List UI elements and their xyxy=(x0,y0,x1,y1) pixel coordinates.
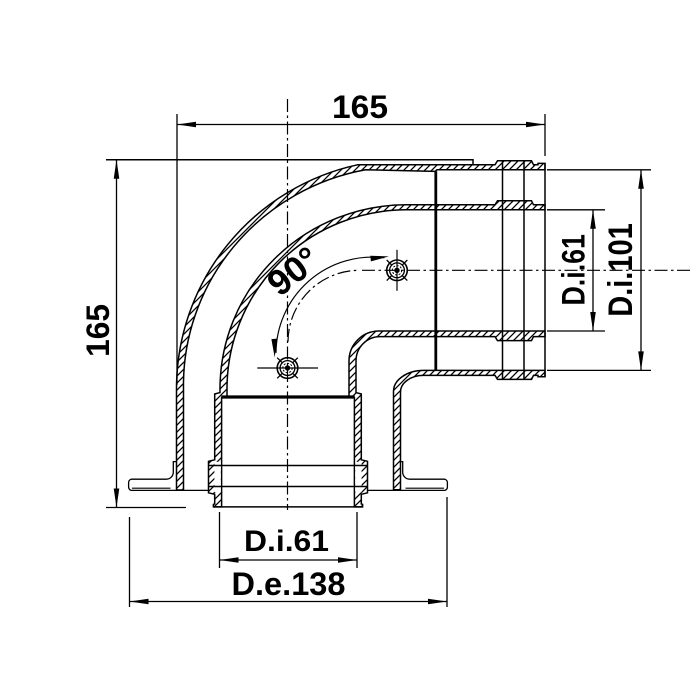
svg-text:165: 165 xyxy=(332,89,388,125)
svg-text:165: 165 xyxy=(80,304,116,357)
svg-text:D.i.61: D.i.61 xyxy=(244,525,329,558)
svg-text:D.i.101: D.i.101 xyxy=(602,223,640,317)
svg-text:D.e.138: D.e.138 xyxy=(232,566,346,602)
svg-text:D.i.61: D.i.61 xyxy=(556,234,592,306)
